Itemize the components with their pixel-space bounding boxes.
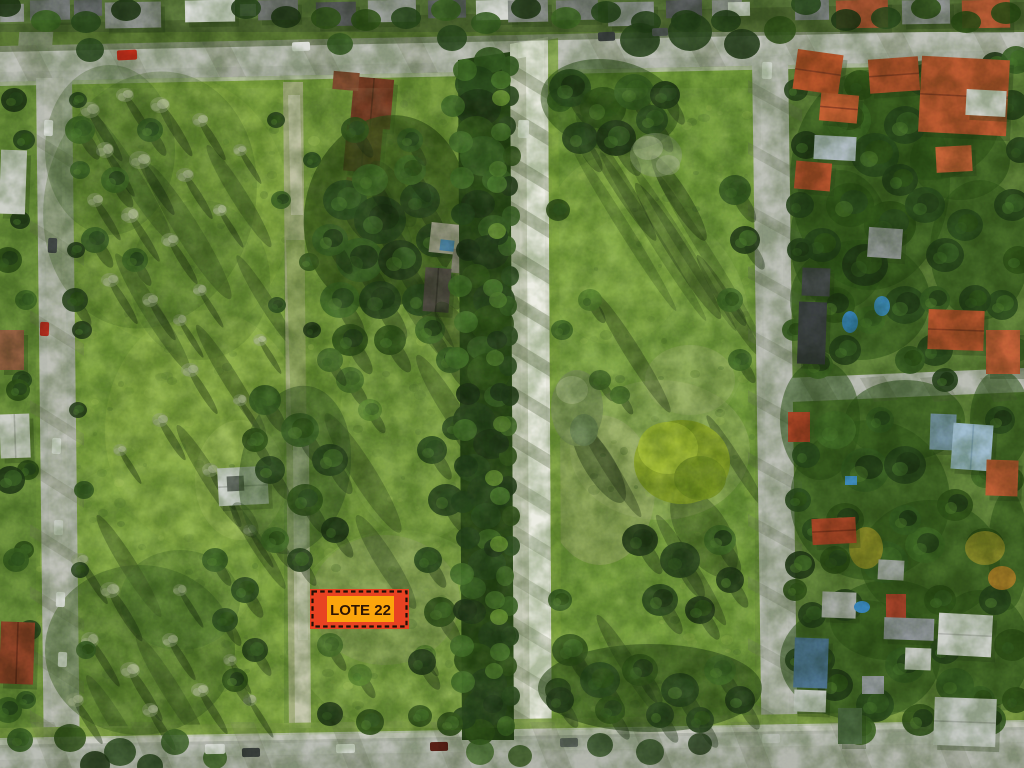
svg-text:LOTE 22: LOTE 22: [330, 602, 391, 619]
